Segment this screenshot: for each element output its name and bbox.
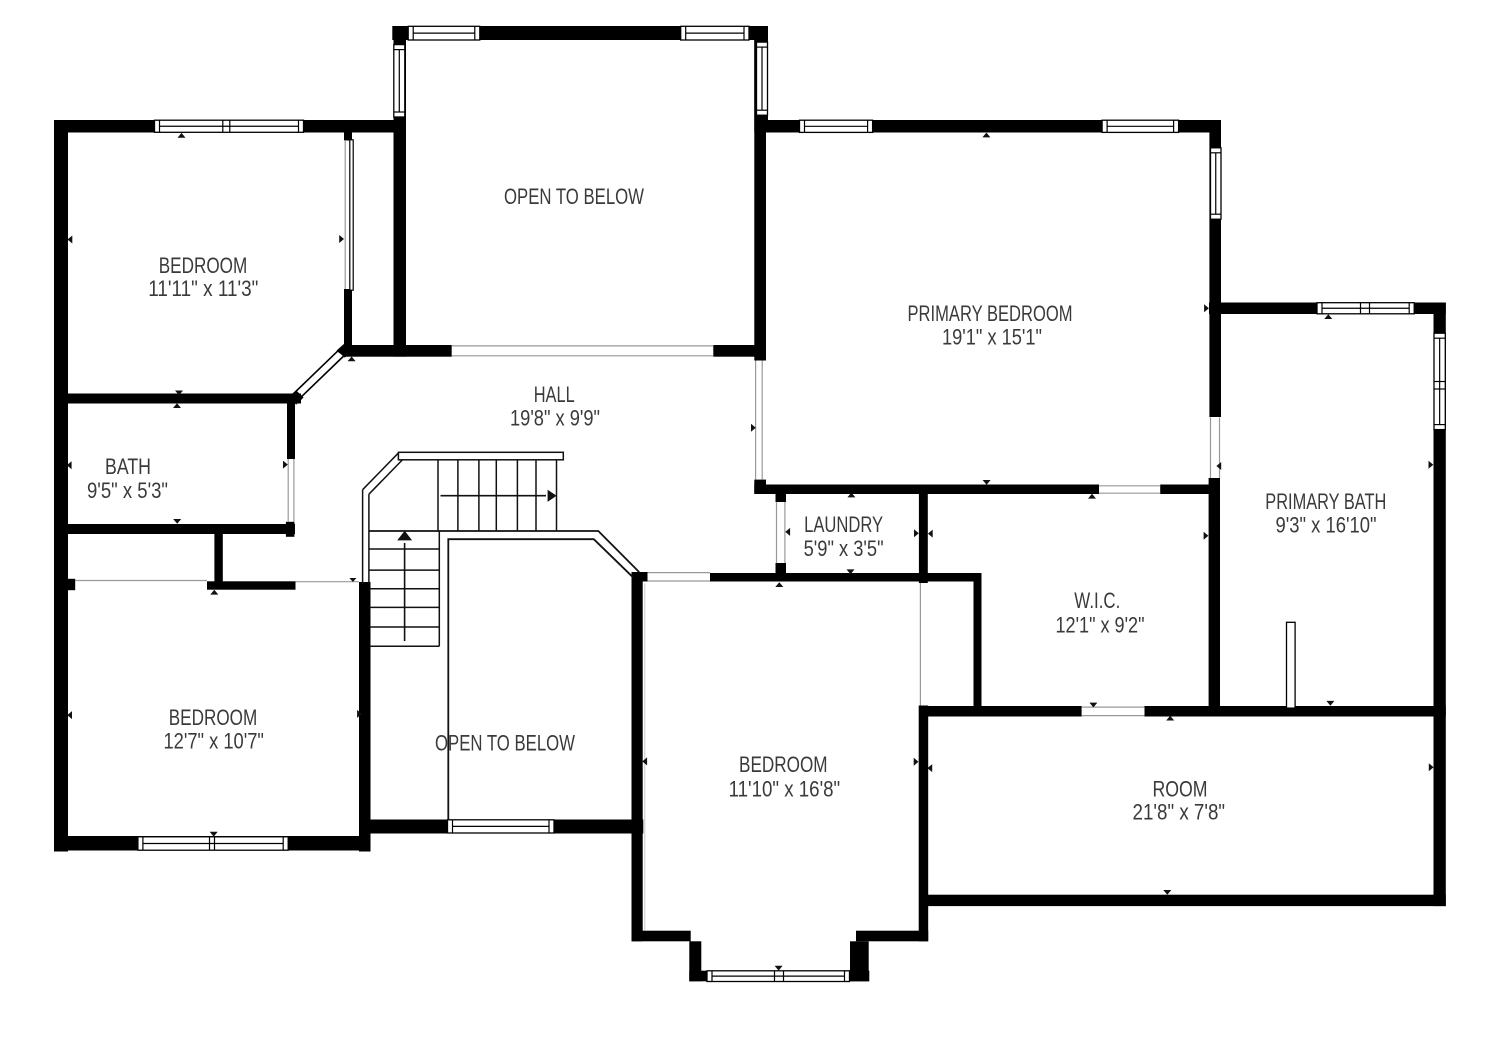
svg-text:12'1" x 9'2": 12'1" x 9'2": [1056, 612, 1145, 637]
svg-text:12'7" x 10'7": 12'7" x 10'7": [163, 728, 264, 753]
svg-text:ROOM: ROOM: [1153, 776, 1208, 801]
svg-text:BEDROOM: BEDROOM: [159, 253, 248, 278]
svg-text:BEDROOM: BEDROOM: [169, 705, 258, 730]
svg-text:19'1" x 15'1": 19'1" x 15'1": [942, 324, 1042, 349]
svg-text:PRIMARY BEDROOM: PRIMARY BEDROOM: [908, 301, 1073, 326]
svg-text:OPEN TO BELOW: OPEN TO BELOW: [504, 184, 644, 209]
svg-text:5'9" x 3'5": 5'9" x 3'5": [804, 536, 884, 561]
svg-text:11'10" x 16'8": 11'10" x 16'8": [729, 776, 841, 801]
svg-text:HALL: HALL: [534, 382, 575, 407]
svg-text:LAUNDRY: LAUNDRY: [804, 512, 883, 537]
svg-text:BEDROOM: BEDROOM: [739, 752, 828, 777]
svg-text:OPEN TO BELOW: OPEN TO BELOW: [435, 730, 575, 755]
svg-text:PRIMARY BATH: PRIMARY BATH: [1265, 489, 1386, 514]
svg-text:9'5" x 5'3": 9'5" x 5'3": [87, 478, 168, 503]
svg-text:11'11" x 11'3": 11'11" x 11'3": [148, 276, 258, 301]
svg-text:BATH: BATH: [105, 454, 151, 479]
svg-text:21'8" x 7'8": 21'8" x 7'8": [1133, 799, 1226, 824]
svg-text:W.I.C.: W.I.C.: [1074, 588, 1120, 613]
svg-text:9'3" x 16'10": 9'3" x 16'10": [1276, 513, 1377, 538]
svg-text:19'8" x 9'9": 19'8" x 9'9": [510, 405, 600, 430]
